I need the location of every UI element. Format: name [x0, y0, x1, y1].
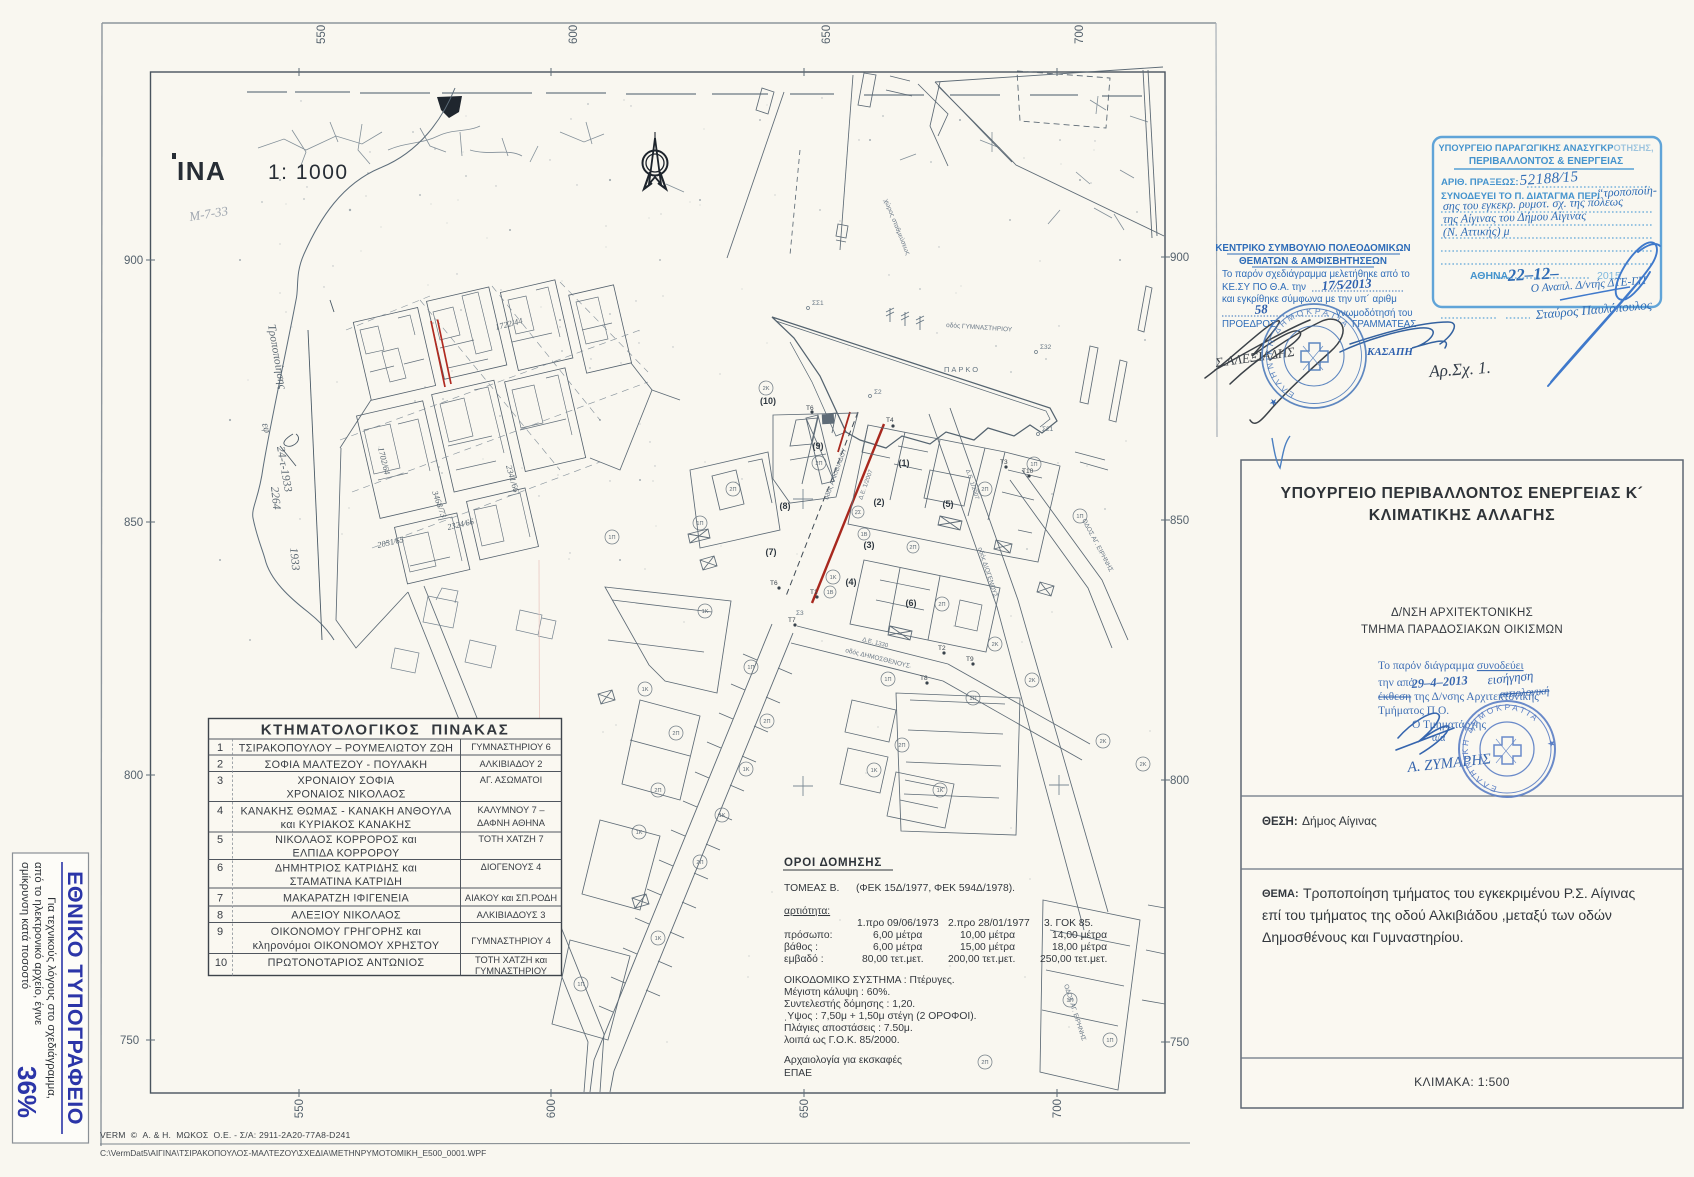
svg-text:ΟΡΟΙ ΔΟΜΗΣΗΣ: ΟΡΟΙ ΔΟΜΗΣΗΣ [784, 857, 882, 869]
svg-text:(Ν. Αττικής) μ: (Ν. Αττικής) μ [1443, 224, 1510, 239]
svg-text:2: 2 [217, 759, 223, 771]
svg-text:Σ32: Σ32 [1040, 344, 1052, 351]
svg-text:ΤΟΜΕΑΣ Β.: ΤΟΜΕΑΣ Β. [784, 883, 839, 894]
svg-text:ΑΡΙΘ. ΠΡΑΞΕΩΣ:: ΑΡΙΘ. ΠΡΑΞΕΩΣ: [1441, 177, 1519, 188]
svg-text:10: 10 [215, 957, 227, 969]
svg-text:1Π: 1Π [969, 696, 976, 702]
svg-text:Τ2: Τ2 [938, 645, 946, 652]
svg-text:Δήμος Αίγινας: Δήμος Αίγινας [1302, 814, 1377, 828]
svg-text:ΑΓ. ΑΣΩΜΑΤΟΙ: ΑΓ. ΑΣΩΜΑΤΟΙ [480, 775, 542, 785]
svg-text:2Κ: 2Κ [1100, 739, 1107, 745]
svg-text:ΔΙΟΓΕΝΟΥΣ 4: ΔΙΟΓΕΝΟΥΣ 4 [481, 862, 542, 872]
svg-text:ΔΑΦΝΗ ΑΘΗΝΑ: ΔΑΦΝΗ ΑΘΗΝΑ [477, 818, 546, 828]
svg-text:1.προ 09/06/1973: 1.προ 09/06/1973 [857, 918, 939, 929]
svg-text:1Π: 1Π [696, 521, 703, 527]
svg-text:Δημοσθένους και Γυμναστηρίου.: Δημοσθένους και Γυμναστηρίου. [1262, 929, 1464, 945]
svg-text:2Π: 2Π [909, 545, 916, 551]
svg-text:ΚΤΗΜΑΤΟΛΟΓΙΚΟΣ ΠΙΝΑΚΑΣ: ΚΤΗΜΑΤΟΛΟΓΙΚΟΣ ΠΙΝΑΚΑΣ [261, 722, 510, 739]
svg-text:ΚΑΛΥΜΝΟΥ 7 –: ΚΑΛΥΜΝΟΥ 7 – [477, 805, 545, 815]
svg-text:λοιπά ως Γ.Ο.Κ. 85/2000.: λοιπά ως Γ.Ο.Κ. 85/2000. [784, 1034, 900, 1046]
svg-text:ΠΡΟΕΔΡΟΣ: ΠΡΟΕΔΡΟΣ [1222, 319, 1276, 330]
svg-text:1: 1000: 1: 1000 [268, 161, 349, 184]
svg-text:βάθος :: βάθος : [784, 941, 818, 953]
svg-text:8: 8 [217, 910, 223, 922]
svg-text:(6): (6) [906, 598, 917, 608]
svg-text:700: 700 [1074, 25, 1086, 44]
svg-text:Σ3: Σ3 [796, 610, 804, 617]
svg-text:σμίκρυνση κατά ποσοστό: σμίκρυνση κατά ποσοστό [19, 862, 31, 989]
svg-text:ΕΘΝΙΚΟ ΤΥΠΟΓΡΑΦΕΙΟ: ΕΘΝΙΚΟ ΤΥΠΟΓΡΑΦΕΙΟ [63, 871, 87, 1125]
svg-text:1Κ: 1Κ [655, 936, 662, 942]
svg-text:1Π: 1Π [1030, 462, 1037, 468]
svg-text:Σ21: Σ21 [1042, 426, 1054, 433]
svg-text:2Π: 2Π [815, 461, 822, 467]
svg-text:Τ10: Τ10 [1022, 468, 1034, 475]
svg-text:6: 6 [217, 862, 223, 874]
svg-text:ΣΤΑΜΑΤΙΝΑ ΚΑΤΡΙΔΗ: ΣΤΑΜΑΤΙΝΑ ΚΑΤΡΙΔΗ [290, 876, 403, 888]
svg-text:3: 3 [217, 775, 223, 787]
svg-text:Τ9: Τ9 [966, 656, 974, 663]
svg-text:ΤΟΤΗ ΧΑΤΖΗ 7: ΤΟΤΗ ΧΑΤΖΗ 7 [478, 834, 543, 844]
svg-text:5: 5 [217, 834, 223, 846]
svg-text:18,00 μέτρα: 18,00 μέτρα [1052, 941, 1107, 953]
svg-text:ΤΜΗΜΑ ΠΑΡΑΔΟΣΙΑΚΩΝ ΟΙΚΙΣΜΩΝ: ΤΜΗΜΑ ΠΑΡΑΔΟΣΙΑΚΩΝ ΟΙΚΙΣΜΩΝ [1361, 624, 1563, 636]
svg-text:πρόσωπο:: πρόσωπο: [784, 929, 832, 941]
svg-text:ΣΟΦΙΑ ΜΑΛΤΕΖΟΥ - ΠΟΥΛΑΚΗ: ΣΟΦΙΑ ΜΑΛΤΕΖΟΥ - ΠΟΥΛΑΚΗ [265, 759, 428, 771]
svg-text:2.προ 28/01/1977: 2.προ 28/01/1977 [948, 918, 1030, 929]
svg-text:εμβαδό :: εμβαδό : [784, 953, 824, 965]
svg-text:ΥΠΟΥΡΓΕΙΟ ΠΑΡΑΓΩΓΙΚΗΣ ΑΝΑΣΥΓΚΡ: ΥΠΟΥΡΓΕΙΟ ΠΑΡΑΓΩΓΙΚΗΣ ΑΝΑΣΥΓΚΡΟΤΗΣΗΣ, [1438, 143, 1653, 153]
svg-text:(2): (2) [874, 497, 885, 507]
svg-text:Τροποποίηση τμήματος του εγ: Τροποποίηση τμήματος του εγκεκριμένου Ρ.… [1303, 885, 1636, 901]
svg-text:ΔΗΜΗΤΡΙΟΣ ΚΑΤΡΙΔΗΣ και: ΔΗΜΗΤΡΙΟΣ ΚΑΤΡΙΔΗΣ και [275, 863, 418, 875]
svg-text:250,00 τετ.μετ.: 250,00 τετ.μετ. [1040, 954, 1107, 965]
svg-text:Μέγιστη κάλυψη : 60%.: Μέγιστη κάλυψη : 60%. [784, 986, 890, 998]
svg-text:Πλάγιες αποστάσεις : 7.50μ.: Πλάγιες αποστάσεις : 7.50μ. [784, 1022, 913, 1034]
svg-text:2Π: 2Π [898, 743, 905, 749]
svg-text:900: 900 [1170, 252, 1189, 264]
svg-text:ΘΕΜΑ:: ΘΕΜΑ: [1262, 888, 1299, 900]
svg-text:ΚΕ.ΣΥ ΠΟ Θ.Α. την: ΚΕ.ΣΥ ΠΟ Θ.Α. την [1222, 282, 1306, 293]
svg-text:800: 800 [1170, 775, 1189, 787]
svg-text:ΕΛΠΙΔΑ ΚΟΡΡΟΡΟΥ: ΕΛΠΙΔΑ ΚΟΡΡΟΡΟΥ [292, 848, 399, 860]
svg-text:2Π: 2Π [981, 1060, 988, 1066]
svg-text:200,00 τετ.μετ.: 200,00 τετ.μετ. [948, 954, 1015, 965]
svg-text:(7): (7) [766, 547, 777, 557]
svg-text:ΜΑΚΑΡΑΤΖΗ ΙΦΙΓΕΝΕΙΑ: ΜΑΚΑΡΑΤΖΗ ΙΦΙΓΕΝΕΙΑ [283, 893, 410, 905]
svg-text:ΠΕΡΙΒΑΛΛΟΝΤΟΣ & ΕΝΕΡΓΕΙΑΣ: ΠΕΡΙΒΑΛΛΟΝΤΟΣ & ΕΝΕΡΓΕΙΑΣ [1469, 156, 1623, 167]
svg-text:58: 58 [1254, 301, 1269, 317]
svg-text:850: 850 [1170, 515, 1189, 527]
svg-text:Συντελεστής δόμησης : 1,20.: Συντελεστής δόμησης : 1,20. [784, 998, 915, 1010]
svg-text:από το ηλεκτρονικό αρχείο, έγι: από το ηλεκτρονικό αρχείο, έγινε [32, 862, 44, 1025]
svg-text:κληρονόμοι ΟΙΚΟΝΟΜΟΥ ΧΡΗΣΤΟΥ: κληρονόμοι ΟΙΚΟΝΟΜΟΥ ΧΡΗΣΤΟΥ [253, 940, 440, 952]
svg-text:ΚΑΣΑΠΗ: ΚΑΣΑΠΗ [1366, 346, 1413, 358]
svg-text:Το παρόν σχεδιάγραμμα μελετήθη: Το παρόν σχεδιάγραμμα μελετήθηκε από το [1222, 269, 1410, 280]
svg-text:ΑΘΗΝΑ,: ΑΘΗΝΑ, [1470, 270, 1511, 282]
svg-text:ΚΛΙΜΑΤΙΚΗΣ ΑΛΛΑΓΗΣ: ΚΛΙΜΑΤΙΚΗΣ ΑΛΛΑΓΗΣ [1369, 507, 1556, 524]
svg-text:ΥΠΟΥΡΓΕΙΟ ΠΕΡΙΒΑΛΛΟΝΤΟΣ ΕΝΕΡΓΕ: ΥΠΟΥΡΓΕΙΟ ΠΕΡΙΒΑΛΛΟΝΤΟΣ ΕΝΕΡΓΕΙΑΣ Κ´ [1281, 485, 1644, 502]
svg-text:800: 800 [124, 770, 143, 782]
svg-text:650: 650 [821, 25, 833, 44]
svg-text:1Κ: 1Κ [702, 609, 709, 615]
svg-text:2Σ: 2Σ [855, 510, 862, 516]
svg-text:(3): (3) [864, 540, 875, 550]
svg-text:C:\VermDat5\ΑΙΓΙΝΑ\ΤΣΙΡΑΚΟΠΟΥΛ: C:\VermDat5\ΑΙΓΙΝΑ\ΤΣΙΡΑΚΟΠΟΥΛΟΣ-ΜΑΛΤΕΖΟ… [100, 1148, 486, 1158]
svg-text:1Κ: 1Κ [871, 768, 878, 774]
svg-text:ΧΡΟΝΑΙΟΣ ΝΙΚΟΛΑΟΣ: ΧΡΟΝΑΙΟΣ ΝΙΚΟΛΑΟΣ [286, 789, 405, 801]
svg-text:(ΦΕΚ 15Δ/1977, ΦΕΚ 594Δ/1978): (ΦΕΚ 15Δ/1977, ΦΕΚ 594Δ/1978). [856, 883, 1015, 894]
svg-text:ΟΙΚΟΝΟΜΟΥ ΓΡΗΓΟΡΗΣ και: ΟΙΚΟΝΟΜΟΥ ΓΡΗΓΟΡΗΣ και [271, 926, 422, 938]
svg-text:ΑΙΑΚΟΥ και ΣΠ.ΡΟΔΗ: ΑΙΑΚΟΥ και ΣΠ.ΡΟΔΗ [465, 893, 557, 903]
svg-text:550: 550 [294, 1099, 306, 1118]
svg-text:την από: την από [1378, 677, 1415, 689]
svg-text:Τ8: Τ8 [920, 675, 928, 682]
svg-text:15,00 μέτρα: 15,00 μέτρα [960, 941, 1015, 953]
svg-text:2Π: 2Π [672, 731, 679, 737]
svg-text:και εγκρίθηκε σύμφωνα με τ: και εγκρίθηκε σύμφωνα με την υπ´ αριθμ [1222, 294, 1397, 305]
svg-text:ΤΟΤΗ ΧΑΤΖΗ και: ΤΟΤΗ ΧΑΤΖΗ και [475, 955, 547, 965]
svg-text:9: 9 [217, 926, 223, 938]
svg-text:1Β: 1Β [861, 532, 868, 538]
svg-text:ΕΠΑΕ: ΕΠΑΕ [784, 1068, 812, 1079]
svg-text:ΠΑΡΚΟ: ΠΑΡΚΟ [944, 365, 980, 374]
svg-text:1: 1 [217, 742, 223, 754]
svg-text:γνωμοδότησή του: γνωμοδότησή του [1336, 308, 1413, 319]
svg-text:Τ3: Τ3 [1000, 459, 1008, 466]
svg-text:1Κ: 1Κ [642, 687, 649, 693]
svg-text:7: 7 [217, 893, 223, 905]
svg-text:750: 750 [120, 1035, 139, 1047]
svg-text:ΚΛΙΜΑΚΑ: 1:500: ΚΛΙΜΑΚΑ: 1:500 [1414, 1075, 1510, 1089]
svg-text:1Π: 1Π [577, 982, 584, 988]
svg-text:Τ4: Τ4 [886, 417, 894, 424]
svg-text:ΑΛΚΙΒΙΑΔΟΥΣ 3: ΑΛΚΙΒΙΑΔΟΥΣ 3 [477, 910, 546, 920]
svg-text:(5): (5) [943, 499, 954, 509]
svg-text:Αρχαιολογία για εκσκαφές: Αρχαιολογία για εκσκαφές [784, 1054, 902, 1066]
svg-text:2264: 2264 [268, 486, 282, 510]
svg-text:1Κ: 1Κ [830, 575, 837, 581]
svg-text:10,00 μέτρα: 10,00 μέτρα [960, 929, 1015, 941]
svg-text:Δ/ΝΣΗ ΑΡΧΙΤΕΚΤΟΝΙΚΗΣ: Δ/ΝΣΗ ΑΡΧΙΤΕΚΤΟΝΙΚΗΣ [1391, 607, 1533, 619]
svg-text:1Κ: 1Κ [743, 767, 750, 773]
svg-text:(8): (8) [780, 501, 791, 511]
svg-text:(9): (9) [813, 441, 824, 451]
svg-text:ΘΕΜΑΤΩΝ & ΑΜΦΙΣΒΗΤΗΣΕΩΝ: ΘΕΜΑΤΩΝ & ΑΜΦΙΣΒΗΤΗΣΕΩΝ [1239, 256, 1387, 267]
svg-text:2Κ: 2Κ [992, 642, 999, 648]
svg-text:6,00 μέτρα: 6,00 μέτρα [873, 929, 922, 941]
svg-text:ΓΥΜΝΑΣΤΗΡΙΟΥ: ΓΥΜΝΑΣΤΗΡΙΟΥ [475, 966, 547, 976]
svg-text:Τ7: Τ7 [788, 617, 796, 624]
svg-text:ΤΣΙΡΑΚΟΠΟΥΛΟΥ – ΡΟΥΜΕΛΙΩΤΟΥ ΖΩ: ΤΣΙΡΑΚΟΠΟΥΛΟΥ – ΡΟΥΜΕΛΙΩΤΟΥ ΖΩΗ [239, 743, 454, 755]
svg-text:ΑΛΚΙΒΙΑΔΟΥ 2: ΑΛΚΙΒΙΑΔΟΥ 2 [480, 759, 543, 769]
svg-text:2Π: 2Π [938, 602, 945, 608]
svg-text:3. ΓΟΚ 85.: 3. ΓΟΚ 85. [1044, 918, 1093, 929]
svg-text:600: 600 [568, 25, 580, 44]
svg-text:700: 700 [1052, 1099, 1064, 1118]
svg-text:ΣΣ1: ΣΣ1 [812, 300, 824, 307]
svg-text:ΝΙΚΟΛΑΟΣ ΚΟΡΡΟΡΟΣ και: ΝΙΚΟΛΑΟΣ ΚΟΡΡΟΡΟΣ και [275, 834, 417, 846]
svg-text:2Κ: 2Κ [1140, 762, 1147, 768]
svg-text:(1): (1) [899, 458, 910, 468]
svg-text:αρτιότητα:: αρτιότητα: [784, 905, 830, 917]
svg-text:6,00 μέτρα: 6,00 μέτρα [873, 941, 922, 953]
svg-text:900: 900 [124, 255, 143, 267]
svg-text:650: 650 [799, 1099, 811, 1118]
svg-text:1Π: 1Π [1106, 1038, 1113, 1044]
svg-text:Σ2: Σ2 [874, 389, 882, 396]
svg-text:1Π: 1Π [1076, 514, 1083, 520]
svg-text:ΙΝΑ: ΙΝΑ [177, 156, 226, 186]
svg-text:1933: 1933 [287, 547, 301, 571]
svg-text:Τ6: Τ6 [770, 580, 778, 587]
svg-text:2Κ: 2Κ [1029, 678, 1036, 684]
svg-text:600: 600 [546, 1099, 558, 1118]
svg-text:4: 4 [217, 805, 223, 817]
svg-text:ΘΕΣΗ:: ΘΕΣΗ: [1262, 816, 1298, 828]
svg-text:2Κ: 2Κ [763, 386, 770, 392]
svg-text:1Π: 1Π [884, 677, 891, 683]
svg-text:2Π: 2Π [729, 487, 736, 493]
svg-text:1Κ: 1Κ [937, 788, 944, 794]
svg-text:VERM © Α. & Η. ΜΩΚΟΣ Ο.Ε.: VERM © Α. & Η. ΜΩΚΟΣ Ο.Ε. - Σ/Α: 2911-2Α… [100, 1130, 351, 1140]
svg-text:ΓΥΜΝΑΣΤΗΡΙΟΥ 6: ΓΥΜΝΑΣΤΗΡΙΟΥ 6 [471, 742, 551, 752]
svg-text:και ΚΥΡΙΑΚΟΣ ΚΑΝΑΚΗΣ: και ΚΥΡΙΑΚΟΣ ΚΑΝΑΚΗΣ [281, 819, 412, 831]
svg-text:Τ1: Τ1 [810, 589, 818, 596]
svg-text:Για τεχνικούς λόγους στο σ: Για τεχνικούς λόγους στο σχεδιάγραμμα, [45, 897, 57, 1099]
svg-text:17⁄5⁄2013: 17⁄5⁄2013 [1321, 275, 1372, 293]
svg-text:80,00 τετ.μετ.: 80,00 τετ.μετ. [862, 954, 924, 965]
svg-text:14,00 μέτρα: 14,00 μέτρα [1052, 929, 1107, 941]
svg-text:ΑΛΕΞΙΟΥ ΝΙΚΟΛΑΟΣ: ΑΛΕΞΙΟΥ ΝΙΚΟΛΑΟΣ [291, 910, 401, 922]
svg-text:2Π: 2Π [981, 487, 988, 493]
svg-text:1Β: 1Β [827, 590, 834, 596]
svg-text:ΚΕΝΤΡΙΚΟ ΣΥΜΒΟΥΛΙΟ ΠΟΛΕΟΔΟΜΙΚΩ: ΚΕΝΤΡΙΚΟ ΣΥΜΒΟΥΛΙΟ ΠΟΛΕΟΔΟΜΙΚΩΝ [1215, 243, 1410, 254]
svg-text:36%: 36% [12, 1066, 42, 1118]
svg-text:(10): (10) [760, 396, 776, 406]
svg-text:550: 550 [316, 25, 328, 44]
svg-text:ΧΡΟΝΑΙΟΥ ΣΟΦΙΑ: ΧΡΟΝΑΙΟΥ ΣΟΦΙΑ [298, 775, 395, 787]
svg-text:ˌΥψος : 7,50μ + 1,50μ στέγη (2: ˌΥψος : 7,50μ + 1,50μ στέγη (2 ΟΡΟΦΟΙ). [784, 1010, 976, 1022]
svg-text:750: 750 [1170, 1037, 1189, 1049]
svg-text:850: 850 [124, 517, 143, 529]
svg-text:ΟΙΚΟΔΟΜΙΚΟ ΣΥΣΤΗΜΑ : Πτέρυγε: ΟΙΚΟΔΟΜΙΚΟ ΣΥΣΤΗΜΑ : Πτέρυγες. [784, 974, 955, 986]
svg-text:ΚΑΝΑΚΗΣ ΘΩΜΑΣ - ΚΑΝΑΚΗ ΑΝΘΟ: ΚΑΝΑΚΗΣ ΘΩΜΑΣ - ΚΑΝΑΚΗ ΑΝΘΟΥΛΑ [240, 806, 452, 818]
svg-text:(4): (4) [846, 577, 857, 587]
svg-text:ΓΥΜΝΑΣΤΗΡΙΟΥ 4: ΓΥΜΝΑΣΤΗΡΙΟΥ 4 [471, 936, 551, 946]
svg-text:επί του τμήματος της οδού Αλκι: επί του τμήματος της οδού Αλκιβιάδου ,με… [1262, 907, 1612, 923]
svg-text:1Π: 1Π [608, 535, 615, 541]
svg-text:ΠΡΩΤΟΝΟΤΑΡΙΟΣ ΑΝΤΩΝΙΟΣ: ΠΡΩΤΟΝΟΤΑΡΙΟΣ ΑΝΤΩΝΙΟΣ [268, 957, 425, 969]
svg-text:2Π: 2Π [763, 719, 770, 725]
